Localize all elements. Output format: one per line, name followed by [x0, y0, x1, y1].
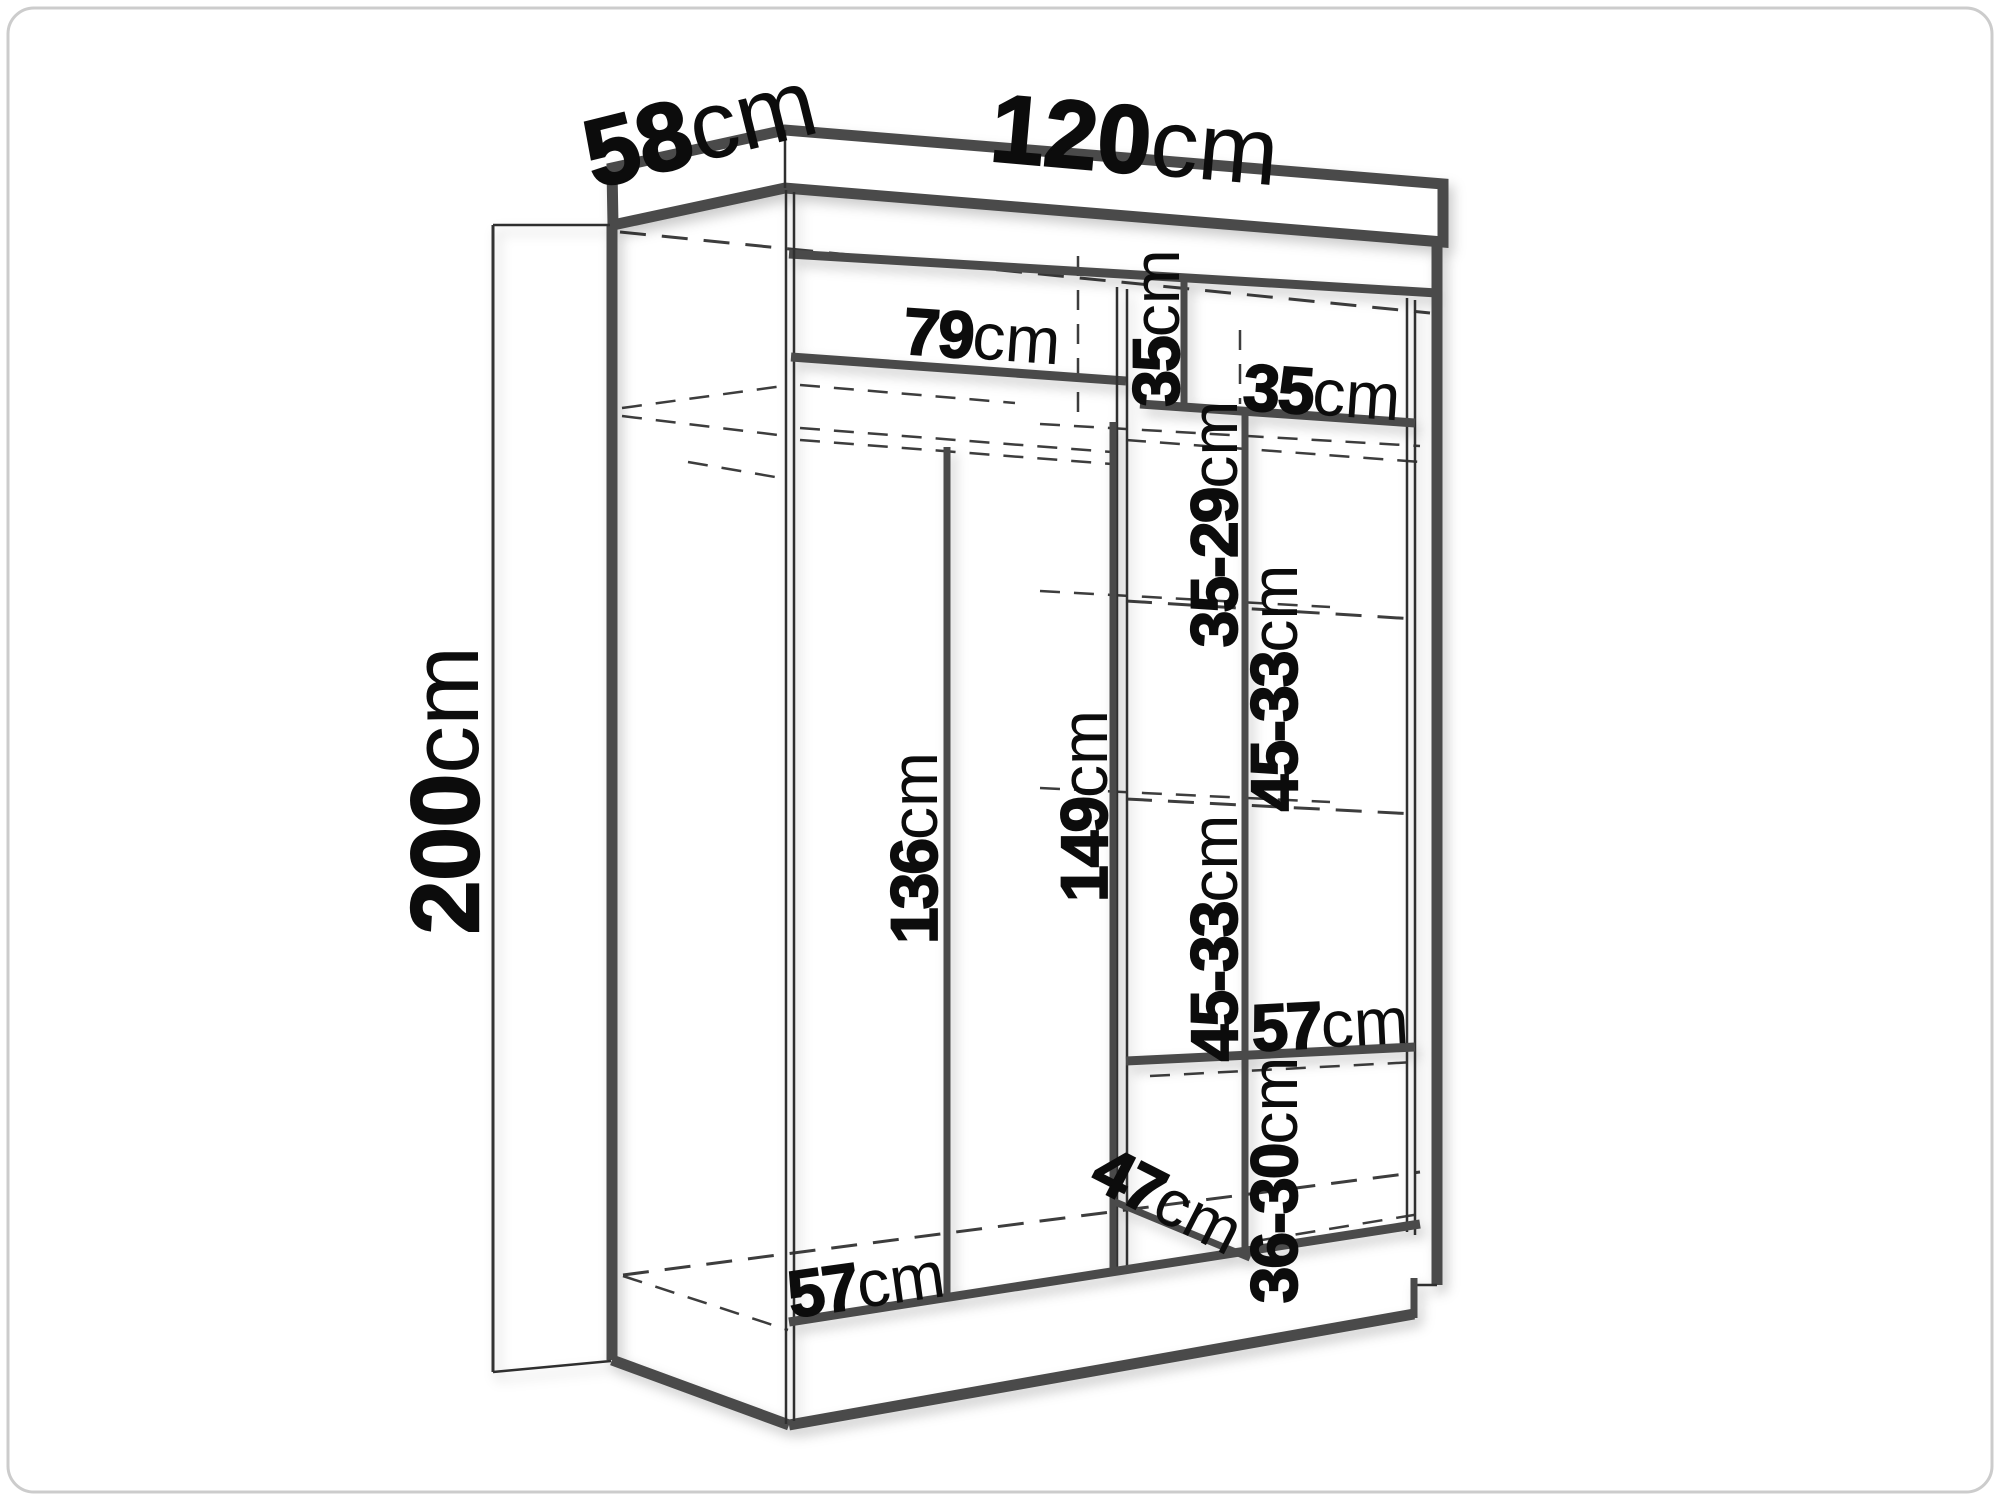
dimension-labels: 58cm 120cm 200cm 79cm 35cm 35cm 35-29cm …	[392, 48, 1411, 1332]
body-bottom-left-edge	[612, 1360, 789, 1425]
dash-hanging-rail-top	[800, 428, 1112, 452]
label-diagonal-47: 47cm	[1081, 1131, 1255, 1268]
dash-hanging-rail-bottom	[800, 440, 1112, 464]
label-height-200: 200cm	[392, 646, 499, 934]
wardrobe-dimension-diagram: 58cm 120cm 200cm 79cm 35cm 35cm 35-29cm …	[0, 0, 2000, 1500]
dash-shelf-left-edge	[622, 386, 783, 408]
label-cubby-height-35: 35cm	[1119, 249, 1193, 406]
label-gap-45-33-lower: 45-33cm	[1177, 815, 1251, 1062]
dash-shelf-back-edge	[800, 385, 1015, 403]
body-bottom-front-edge	[789, 1314, 1414, 1425]
label-hanging-136: 136cm	[877, 752, 951, 944]
label-gap-45-33-upper: 45-33cm	[1237, 565, 1311, 812]
height-dimension-tick-bottom	[493, 1361, 611, 1372]
label-cubby-width-35: 35cm	[1241, 350, 1403, 435]
label-left-shelf-79: 79cm	[901, 294, 1063, 379]
dash-shelf1-underside	[1126, 440, 1420, 462]
dash-left-face-extra	[688, 462, 781, 478]
dash-floor-left-edge	[623, 1276, 788, 1330]
label-divider-149: 149cm	[1047, 710, 1121, 902]
image-border	[8, 8, 1992, 1492]
diagram-canvas: 58cm 120cm 200cm 79cm 35cm 35cm 35-29cm …	[0, 0, 2000, 1500]
label-shelf-depth-57: 57cm	[1249, 983, 1410, 1065]
dash-rail-left-end	[622, 416, 778, 435]
label-gap-36-30: 36-30cm	[1237, 1057, 1311, 1304]
interior-ceiling-edge	[789, 254, 1437, 293]
